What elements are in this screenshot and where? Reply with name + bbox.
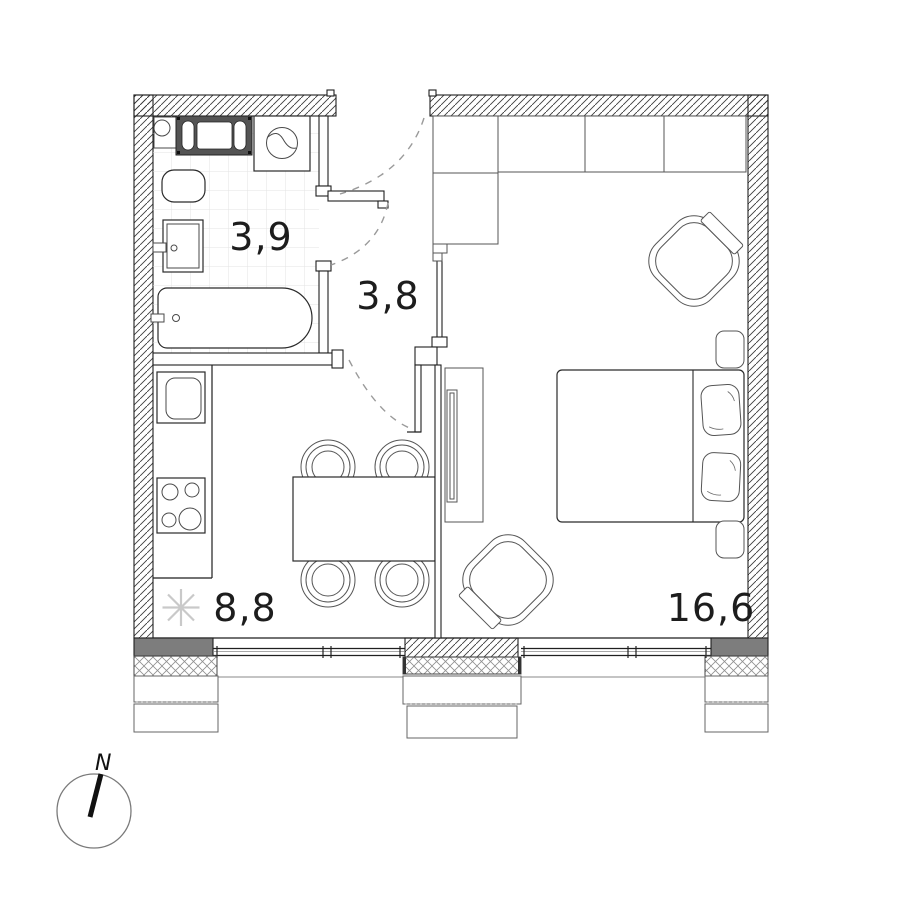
area-label-living: 16,6 <box>667 586 756 630</box>
pillow <box>700 384 741 437</box>
kitchen-door-leaf <box>415 365 421 432</box>
fridge-snowflake-icon <box>163 589 200 626</box>
facade <box>134 638 768 738</box>
nightstand <box>716 521 744 558</box>
room-hallway: 3,8 <box>331 118 424 429</box>
room-kitchen: 8,8 <box>153 365 435 630</box>
pillow <box>701 452 741 502</box>
floorplan-drawing: 3,9 3,8 <box>0 0 900 900</box>
wall-top-right <box>430 95 768 116</box>
bathroom-door-arc <box>331 203 388 265</box>
kitchen-sink <box>157 372 205 423</box>
window-kitchen <box>213 646 405 658</box>
kitchen-door-arc <box>349 360 412 429</box>
pier-left <box>134 638 213 656</box>
area-label-bathroom: 3,9 <box>229 215 292 259</box>
washing-machine <box>254 116 310 171</box>
room-bathroom: 3,9 <box>151 116 388 368</box>
towel-radiator-unit <box>176 116 252 155</box>
kitchen-living-partition <box>435 365 441 638</box>
vestibule-stub-wall <box>328 191 388 208</box>
cooktop <box>157 478 205 533</box>
pier-center <box>405 638 518 657</box>
room-living: 16,6 <box>433 116 755 640</box>
compass: N <box>57 751 131 848</box>
bathtub <box>151 288 312 348</box>
entrance-jamb-right <box>429 90 436 96</box>
bathroom-south-wall <box>153 350 343 368</box>
entrance-jamb-left <box>327 90 334 96</box>
spandrel-center <box>403 657 521 674</box>
compass-north-label: N <box>95 751 111 776</box>
hall-living-wall <box>437 259 442 339</box>
wall-left <box>134 95 153 638</box>
wall-top-left <box>134 95 336 116</box>
spandrel-left <box>134 656 217 676</box>
wall-right <box>748 95 768 638</box>
floorplan-page: 3,9 3,8 <box>0 0 900 900</box>
area-label-hallway: 3,8 <box>356 274 419 318</box>
spandrel-center-edge-r <box>518 657 521 674</box>
dining-table <box>293 477 435 561</box>
balcony-slabs <box>134 676 768 738</box>
compass-needle <box>90 774 101 817</box>
entrance-door-arc <box>340 118 424 194</box>
pier-right <box>711 638 768 656</box>
bed <box>557 370 744 522</box>
spandrel-center-edge-l <box>403 657 406 674</box>
spandrel-right <box>705 656 768 676</box>
wall-cap <box>432 337 447 347</box>
tv-stand <box>445 368 483 522</box>
armchair <box>448 525 563 640</box>
nightstand <box>716 331 744 368</box>
window-living <box>521 646 711 658</box>
water-heater-unit <box>154 117 177 148</box>
kitchen-door-jamb <box>415 347 437 365</box>
area-label-kitchen: 8,8 <box>213 586 276 630</box>
toilet <box>162 170 205 202</box>
armchair <box>639 201 754 316</box>
